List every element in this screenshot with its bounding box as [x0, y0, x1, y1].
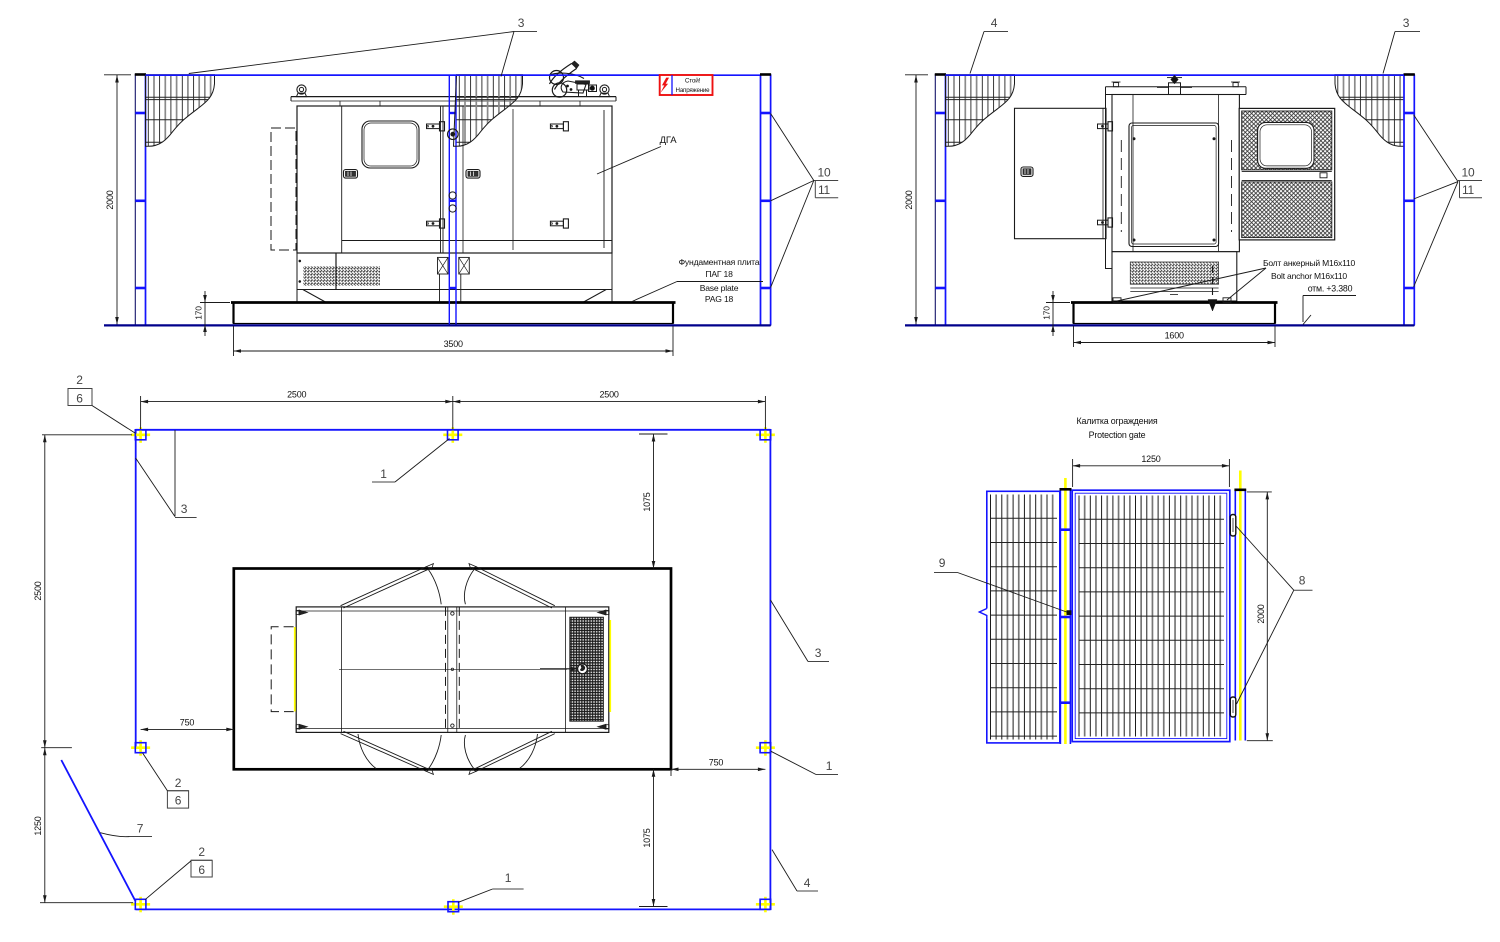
svg-text:3: 3: [518, 16, 525, 30]
svg-text:8: 8: [1299, 574, 1306, 588]
svg-text:6: 6: [175, 794, 182, 808]
svg-text:3500: 3500: [444, 339, 463, 349]
svg-text:1250: 1250: [1141, 454, 1160, 464]
svg-text:2500: 2500: [33, 581, 43, 600]
svg-text:10: 10: [1462, 166, 1475, 180]
svg-text:1600: 1600: [1165, 331, 1184, 341]
svg-text:1: 1: [505, 871, 512, 885]
svg-text:1075: 1075: [642, 828, 652, 847]
svg-text:1250: 1250: [33, 816, 43, 835]
svg-text:3: 3: [815, 646, 822, 660]
svg-text:3: 3: [1403, 16, 1410, 30]
svg-text:4: 4: [804, 876, 811, 890]
svg-text:Protection gate: Protection gate: [1089, 430, 1146, 440]
svg-text:2500: 2500: [287, 390, 306, 400]
svg-text:11: 11: [1462, 183, 1475, 197]
svg-text:1075: 1075: [642, 492, 652, 511]
svg-text:3: 3: [181, 502, 188, 516]
svg-text:7: 7: [137, 822, 144, 836]
svg-text:2000: 2000: [904, 190, 914, 209]
svg-text:Стой!: Стой!: [685, 77, 701, 85]
svg-text:10: 10: [818, 166, 831, 180]
svg-text:2: 2: [76, 373, 83, 387]
svg-text:170: 170: [194, 306, 204, 320]
svg-text:6: 6: [198, 863, 205, 877]
svg-text:PAG 18: PAG 18: [705, 294, 734, 304]
svg-text:2000: 2000: [1256, 604, 1266, 623]
svg-text:11: 11: [818, 183, 831, 197]
svg-text:1: 1: [826, 759, 833, 773]
svg-text:Фундаментная плита: Фундаментная плита: [679, 257, 760, 267]
svg-text:Base plate: Base plate: [700, 283, 739, 293]
svg-text:Болт анкерный М16х110: Болт анкерный М16х110: [1263, 258, 1356, 268]
svg-text:9: 9: [939, 556, 946, 570]
svg-text:2500: 2500: [599, 390, 618, 400]
svg-text:ДГА: ДГА: [660, 135, 678, 146]
svg-text:750: 750: [180, 717, 195, 727]
svg-text:6: 6: [76, 392, 83, 406]
svg-text:4: 4: [991, 16, 998, 30]
svg-text:1: 1: [380, 467, 387, 481]
svg-text:2000: 2000: [105, 190, 115, 209]
svg-text:Bolt anchor M16x110: Bolt anchor M16x110: [1271, 271, 1347, 281]
svg-text:Напряжение: Напряжение: [676, 87, 711, 94]
svg-text:отм. +3.380: отм. +3.380: [1308, 284, 1353, 294]
svg-text:ПАГ 18: ПАГ 18: [705, 269, 733, 279]
svg-text:2: 2: [175, 776, 182, 790]
svg-text:750: 750: [709, 757, 724, 767]
svg-text:2: 2: [198, 845, 205, 859]
svg-text:Калитка ограждения: Калитка ограждения: [1077, 416, 1158, 426]
svg-text:170: 170: [1042, 306, 1052, 320]
